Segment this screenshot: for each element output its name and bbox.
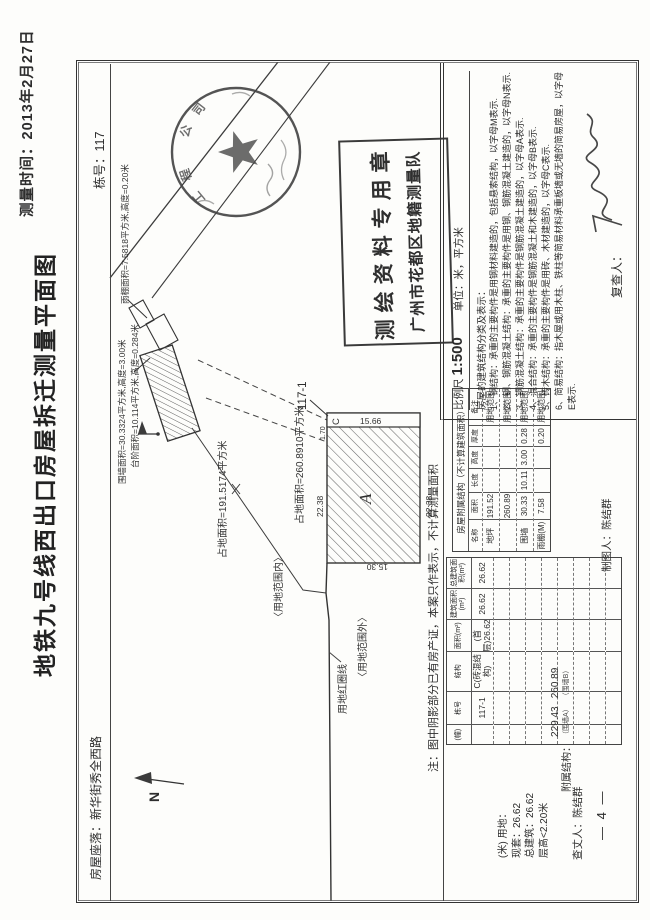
aux-table-cell	[483, 468, 499, 492]
building-table-empty-cell	[574, 558, 589, 588]
legend-header: 比例尺 1:500 单位：米，平方米	[449, 71, 470, 410]
canopy-annotation: 雨棚面积=7.5818平方米,高度=0.20米	[119, 164, 131, 304]
north-label: N	[146, 792, 162, 802]
attachment-item: 229.43（围墙A）	[550, 705, 571, 738]
mt-empty-row	[525, 558, 541, 744]
legend-note: 6、简易结构：指木屋或用木柱、铁柱等简易材料承重板墙或无墙的简易房屋，以字母E表…	[553, 71, 579, 410]
red-line-label: 用地红圈线	[334, 664, 349, 714]
aux-table-cell	[483, 425, 499, 447]
mt-empty-row	[573, 558, 589, 744]
building-table-empty-cell	[526, 619, 541, 651]
legend-note: 1、钢结构：承重的主要构件是用钢材料建造的，包括悬索结构，以字母M表示.	[488, 71, 501, 410]
building-table-empty-cell	[558, 588, 573, 620]
building-table-cell: 26.62	[472, 588, 493, 620]
building-table-empty-cell	[494, 588, 509, 620]
summary-total: 总建筑：26.62	[524, 793, 538, 858]
structure-letter-c: C	[331, 418, 342, 425]
aux-table-header-cell: 长度	[469, 468, 482, 492]
aux-table-cell	[500, 468, 516, 492]
aux-table-cell: 0.28	[517, 425, 533, 447]
building-table-header-cell: 面积(m²)	[447, 619, 471, 651]
building-table-empty-cell	[510, 619, 525, 651]
building-table-empty-cell	[558, 619, 573, 651]
building-table-empty-cell	[590, 724, 605, 744]
aux-table-cell: 191.52	[483, 492, 499, 520]
legend-note: 2、钢、钢筋混凝土结构：承重的主要构件是用钢、钢筋混凝土建造的，以字母N表示.	[501, 71, 514, 410]
steps-annotation: 台阶面积=10.114平方米,高度=0.284米	[129, 324, 141, 468]
attachment-note: （围墙B）	[561, 667, 571, 700]
attachment-value: 260.89	[550, 667, 561, 700]
aux-table-cell	[500, 446, 516, 468]
aux-table-cell: 0.20	[534, 425, 550, 447]
building-table-empty-cell	[558, 558, 573, 588]
building-table-header-cell: 结构	[447, 651, 471, 691]
scanned-survey-document: 地铁九号线西出口房屋拆迁测量平面图 测量时间：2013年2月27日 房屋座落：新…	[0, 0, 650, 920]
aux-table-header-cell: 厚度	[469, 425, 482, 447]
surveyor-name: 查丈人：陈结群	[570, 787, 585, 861]
building-table-empty-cell	[590, 619, 605, 651]
building-table-empty-cell	[542, 588, 557, 620]
mt-empty-row	[493, 558, 509, 744]
building-table-empty-cell	[494, 651, 509, 691]
aux-table-cell: 260.89	[500, 492, 516, 520]
building-table-header-cell: 建筑面积(m²)	[447, 588, 471, 620]
building-table-empty-cell	[606, 588, 621, 620]
aux-table-cell: 围墙	[517, 519, 533, 551]
scale-value: 1:500	[449, 337, 466, 375]
aux-table-cell: 10.11	[517, 468, 533, 492]
summary-current: 现套：26.62	[511, 793, 525, 858]
attachments-items: 229.43（围墙A）260.89（围墙B）	[550, 661, 571, 738]
mt-empty-row	[509, 558, 525, 744]
building-table-empty-cell	[526, 651, 541, 691]
shaded-area-note: 注：图中阴影部分已有房产证，本案只作表示，不计算测量面积	[425, 464, 441, 772]
building-table-empty-cell	[574, 619, 589, 651]
aux-table-cell	[483, 446, 499, 468]
aux-table-cell: 30.33	[517, 492, 533, 520]
aux-table-header-cell: 名称	[469, 519, 482, 551]
drafter-name: 制图人：陈结群	[599, 499, 614, 573]
rect-seal-line2: 广州市花都区地籍测量队	[401, 150, 428, 332]
aux-table-cell: 3.00	[517, 446, 533, 468]
plot-area-260-label: 占地面积=260.8910平方米	[291, 406, 306, 524]
legend-note: 3、钢筋混凝土结构：承重的主要构件是钢筋混凝土建造的，以字母A表示.	[514, 71, 527, 410]
legend-notes: 1、钢结构：承重的主要构件是用钢材料建造的，包括悬索结构，以字母M表示.2、钢、…	[488, 71, 579, 410]
dim-small: 1.70	[320, 426, 327, 440]
building-table-empty-cell	[526, 691, 541, 725]
attachment-note: （围墙A）	[561, 705, 571, 738]
mt-empty-row	[605, 558, 621, 744]
attachment-value: 229.43	[550, 705, 561, 738]
building-table-cell: 26.62	[472, 558, 493, 588]
building-table-empty-cell	[542, 558, 557, 588]
building-table-empty-cell	[494, 691, 509, 725]
unit-label: 单位：米，平方米	[451, 227, 466, 311]
legend-note: 4、混合结构：承重的主要构件是钢筋混凝土和木建造的，以字母B表示.	[527, 71, 540, 410]
building-table-empty-cell	[510, 558, 525, 588]
building-table-empty-cell	[510, 651, 525, 691]
building-table-empty-cell	[590, 691, 605, 725]
building-table-empty-cell	[526, 588, 541, 620]
building-table-cell	[472, 724, 493, 744]
building-table-empty-cell	[494, 619, 509, 651]
legend-intro: 房屋的建筑结构分类及表示：	[474, 71, 488, 410]
building-table-empty-cell	[510, 588, 525, 620]
aux-table-cell: 地坪	[483, 519, 499, 551]
aux-table-header-cell: 面积	[469, 492, 482, 520]
building-table-header-cell: 栋号	[447, 691, 471, 725]
aux-table-cell: 雨棚(M)	[534, 519, 550, 551]
scale-label: 比例尺	[451, 379, 466, 411]
survey-time: 测量时间：2013年2月27日	[16, 30, 37, 217]
structure-letter-a: A	[356, 494, 376, 504]
aux-table-header-cell: 高度	[469, 446, 482, 468]
building-table-empty-cell	[574, 651, 589, 691]
inside-scope-label: 〈用地范围内〉	[270, 552, 285, 622]
mt-empty-row	[589, 558, 605, 744]
building-table: (幢)栋号结构面积(m²)建筑面积(m²)总建筑面积(m²)117-1C(砖混结…	[446, 557, 622, 745]
aux-table-cell	[534, 468, 550, 492]
building-table-header-cell: 总建筑面积(m²)	[447, 558, 471, 588]
building-table-empty-cell	[494, 558, 509, 588]
dim-top: 22.38	[315, 496, 325, 517]
building-table-empty-cell	[606, 651, 621, 691]
summary-land: (米) 用地：	[497, 793, 511, 858]
building-table-empty-cell	[574, 724, 589, 744]
building-table-cell: 117-1	[472, 691, 493, 725]
building-table-empty-cell	[526, 558, 541, 588]
attachment-item: 260.89（围墙B）	[550, 667, 571, 700]
wall-annotation: 围墙面积=30.3324平方米,高度=3.00米	[116, 339, 128, 484]
building-table-empty-cell	[510, 724, 525, 744]
building-table-empty-cell	[526, 724, 541, 744]
aux-table-cell	[500, 519, 516, 551]
dim-left: 15.30	[367, 562, 388, 572]
dim-strip: 15.66	[360, 416, 381, 426]
building-table-empty-cell	[606, 724, 621, 744]
parcel-number-label: 117-1	[297, 381, 309, 410]
plot-area-191-label: 占地面积=191.5174平方米	[214, 440, 229, 558]
aux-table-cell: 7.58	[534, 492, 550, 520]
summary-height: 层高<2.20米	[538, 793, 552, 858]
landscape-sheet: 地铁九号线西出口房屋拆迁测量平面图 测量时间：2013年2月27日 房屋座落：新…	[0, 0, 650, 920]
building-table-empty-cell	[574, 588, 589, 620]
aux-table-cell	[534, 446, 550, 468]
legend-box: 比例尺 1:500 单位：米，平方米 房屋的建筑结构分类及表示： 1、钢结构：承…	[440, 63, 636, 420]
building-table-empty-cell	[606, 619, 621, 651]
building-table-empty-cell	[606, 691, 621, 725]
building-table-empty-cell	[590, 651, 605, 691]
outside-scope-label: 〈用地范围外〉	[354, 612, 369, 682]
building-table-empty-cell	[590, 588, 605, 620]
house-address: 房屋座落：新华街秀全西路	[87, 736, 104, 880]
header-divider-line	[110, 64, 111, 901]
attachments-label: 附属结构：	[558, 742, 573, 792]
rect-seal: 测绘资料专用章 广州市花都区地籍测量队	[338, 138, 454, 347]
mt-head-row: (幢)栋号结构面积(m²)建筑面积(m²)总建筑面积(m²)	[447, 558, 471, 744]
building-table-empty-cell	[510, 691, 525, 725]
building-table-empty-cell	[494, 724, 509, 744]
mt-data-row: 117-1C(砖混结构)(首层)26.6226.6226.62	[471, 558, 493, 744]
aux-table-cell	[500, 425, 516, 447]
building-table-empty-cell	[574, 691, 589, 725]
page-number: — 4 —	[594, 790, 609, 840]
legend-note: 5、砖木结构：承重的主要构件是用砖、木材建造的，以字母C表示.	[540, 71, 553, 410]
page-title: 地铁九号线西出口房屋拆迁测量平面图	[26, 252, 60, 677]
building-number: 栋号：117	[89, 132, 108, 189]
rect-seal-line1: 测绘资料专用章	[364, 144, 399, 341]
building-table-empty-cell	[542, 619, 557, 651]
building-table-cell: C(砖混结构)	[472, 651, 493, 691]
building-table-header-cell: (幢)	[447, 724, 471, 744]
building-table-cell: (首层)26.62	[472, 619, 493, 651]
summary-block: (米) 用地： 现套：26.62 总建筑：26.62 层高<2.20米	[497, 793, 551, 858]
attachments-block: 附属结构： 229.43（围墙A）260.89（围墙B）	[550, 661, 573, 792]
